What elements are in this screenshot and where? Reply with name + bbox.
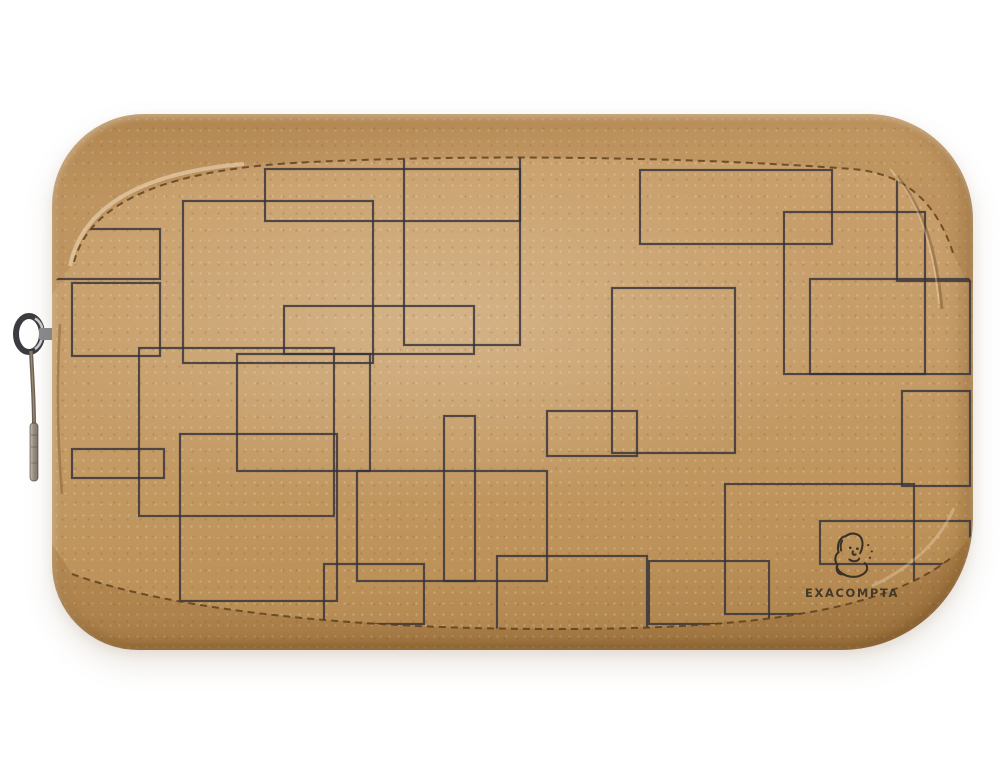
pattern-rect	[183, 201, 373, 363]
pattern-rect	[497, 556, 647, 631]
brand-name: EXACOMPTA	[796, 586, 908, 600]
pattern-rect	[547, 411, 637, 456]
pattern-rect	[810, 279, 970, 374]
pattern-rect	[902, 391, 970, 486]
pattern-rect	[72, 449, 164, 478]
pattern-rect	[784, 212, 925, 374]
exacompta-face-sketch-icon	[825, 526, 879, 584]
pattern-rect	[284, 306, 474, 354]
brand-logo: EXACOMPTA	[796, 526, 908, 600]
pattern-rect	[180, 434, 337, 601]
pattern-rect	[612, 288, 735, 453]
zipper-track-line	[58, 324, 62, 494]
pouch-body: EXACOMPTA	[52, 114, 973, 650]
pattern-rect	[324, 564, 424, 624]
pattern-rect	[444, 416, 475, 581]
pattern-rect	[265, 169, 520, 221]
pattern-rect	[237, 354, 370, 471]
top-gusset-shading	[52, 114, 973, 294]
zipper-pull-icon	[6, 303, 58, 508]
product-photo: EXACOMPTA	[0, 0, 1000, 762]
pattern-rect	[72, 283, 160, 356]
pattern-rect	[640, 170, 832, 244]
